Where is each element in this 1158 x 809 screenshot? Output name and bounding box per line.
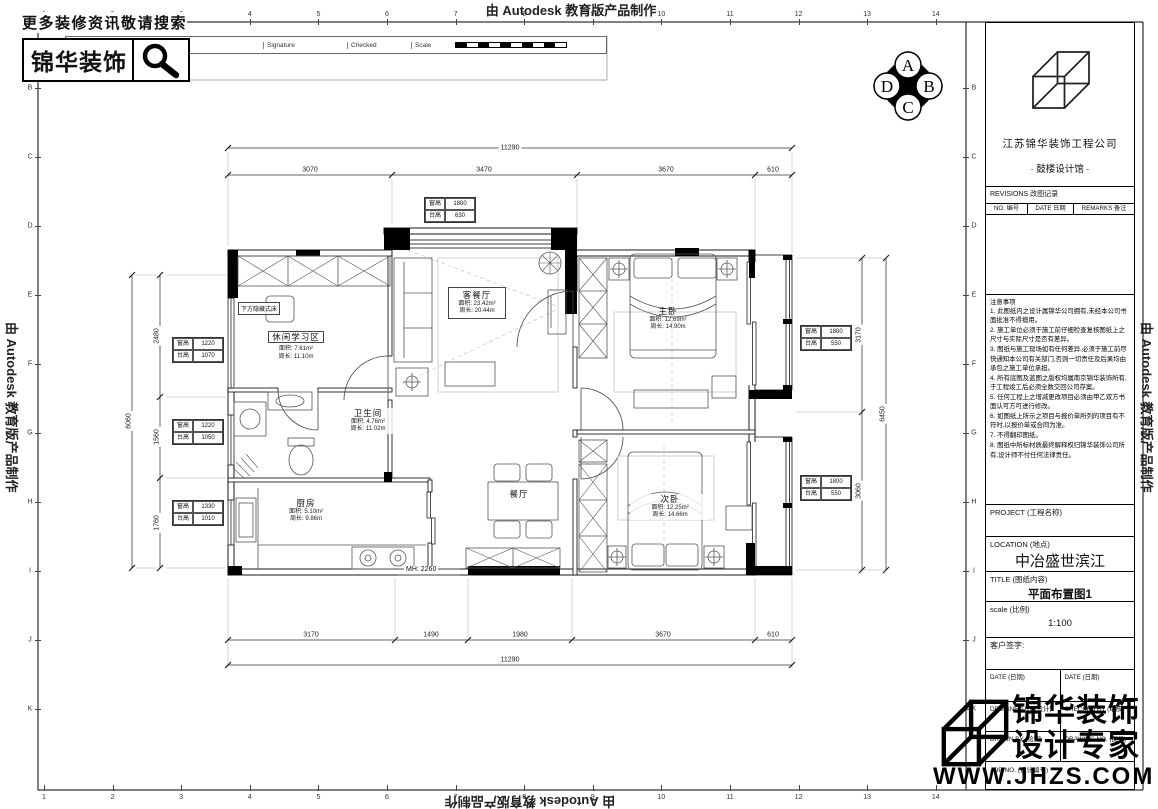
ruler-tick [35, 433, 41, 434]
dimension-ticks [129, 145, 889, 668]
location-value: 中冶盛世滨江 [986, 550, 1134, 571]
win-value: 630 [445, 210, 475, 222]
door-swings [278, 291, 623, 479]
note-item: 1. 此图纸内之设计属锦华公司拥有,未经本公司书面批准不得擅用。 [990, 307, 1130, 325]
grid-number-bottom: 10 [657, 794, 665, 801]
win-label: 台高 [801, 338, 821, 350]
watermark-slogan: 设计专家 [1012, 730, 1140, 761]
magnifier-icon [134, 40, 188, 80]
grid-number-bottom: 11 [726, 794, 733, 801]
grid-letter-right: F [972, 361, 976, 368]
watermark-cube-icon [936, 692, 1014, 774]
grid-letter-left: E [28, 292, 33, 299]
elevation-d: D [881, 77, 893, 96]
dim-top-seg: 610 [765, 167, 781, 174]
win-value: 550 [821, 488, 851, 500]
location-row: LOCATION (地点) 中冶盛世滨江 [986, 536, 1134, 571]
room-perimeter: 周长: 14.90m [628, 324, 708, 332]
grid-number-bottom: 8 [522, 794, 526, 801]
win-value: 1220 [193, 338, 223, 350]
ruler-tick [35, 88, 41, 89]
room-perimeter: 周长: 20.44m [450, 308, 504, 316]
win-label: 窗高 [801, 326, 821, 338]
grid-number-top: 9 [591, 11, 595, 18]
win-value: 1800 [821, 476, 851, 488]
ruler-tick [44, 785, 45, 791]
project-row: PROJECT (工程名称) [986, 504, 1134, 536]
grid-number-bottom: 1 [42, 794, 46, 801]
studio-name: · 鼓楼设计馆 · [986, 161, 1134, 175]
dim-top-total: 11290 [499, 145, 522, 152]
dim-left-seg: 2480 [154, 326, 161, 346]
grid-number-top: 8 [522, 11, 526, 18]
room-name: 客餐厅 [450, 290, 504, 301]
dim-right-seg: 3060 [856, 481, 863, 501]
win-value: 1070 [193, 350, 223, 362]
win-value: 1800 [821, 326, 851, 338]
ruler-tick [799, 19, 800, 25]
notes-section: 注意事项 1. 此图纸内之设计属锦华公司拥有,未经本公司书面批准不得擅用。 2.… [986, 294, 1134, 504]
window-table-top: 窗高1800 台高630 [424, 197, 476, 223]
elevation-b: B [923, 77, 934, 96]
grid-letter-right: I [973, 568, 975, 575]
room-label-kitchen: 厨房 面积: 5.10m² 周长: 9.86m [266, 498, 346, 524]
brand-name: 锦华装饰 [31, 43, 127, 77]
ruler-tick [35, 364, 41, 365]
ruler-tick [524, 785, 525, 791]
dim-bottom-seg: 3670 [653, 632, 673, 639]
win-label: 窗高 [173, 338, 193, 350]
win-value: 1050 [193, 432, 223, 444]
grid-letter-left: B [28, 85, 33, 92]
ruler-tick [35, 640, 41, 641]
grid-number-bottom: 9 [591, 794, 595, 801]
grid-number-top: 14 [932, 11, 940, 18]
ruler-tick [936, 19, 937, 25]
elevation-a: A [902, 56, 915, 75]
strip-scale-bar [455, 42, 567, 48]
window-table-left-2: 窗高1220 台高1050 [172, 419, 224, 445]
note-item: 7. 不得翻印图纸。 [990, 431, 1130, 440]
title-block: 江苏锦华装饰工程公司 · 鼓楼设计馆 · REVISIONS 改图记录 NO. … [985, 22, 1135, 790]
win-label: 台高 [425, 210, 445, 222]
dim-bottom-seg: 1980 [510, 632, 530, 639]
ruler-tick [963, 571, 969, 572]
revisions-table: NO. 编号 DATE 日期 REMARKS 备注 [986, 203, 1134, 295]
dim-bottom-total: 11290 [499, 657, 522, 664]
scale-label: scale (比例) [986, 602, 1134, 615]
room-name: 餐厅 [498, 489, 540, 500]
ruler-tick [35, 502, 41, 503]
dim-top-seg: 3670 [656, 167, 676, 174]
ruler-tick [661, 785, 662, 791]
room-label-living: 客餐厅 面积: 23.42m² 周长: 20.44m [448, 287, 506, 319]
win-label: 窗高 [425, 198, 445, 210]
window-table-right-2: 窗高1800 台高550 [800, 475, 852, 501]
room-name: 次卧 [630, 494, 710, 505]
room-perimeter: 周长: 11.10m [246, 354, 346, 362]
ruler-tick [799, 785, 800, 791]
ruler-tick [963, 502, 969, 503]
grid-number-bottom: 5 [316, 794, 320, 801]
company-logo-cube [1026, 37, 1096, 123]
win-label: 窗高 [173, 420, 193, 432]
win-label: 台高 [173, 350, 193, 362]
grid-letter-right: C [971, 154, 976, 161]
grid-number-bottom: 4 [248, 794, 252, 801]
ruler-tick [250, 19, 251, 25]
ruler-tick [661, 19, 662, 25]
grid-letter-left: K [28, 706, 33, 713]
grid-letter-right: G [971, 430, 976, 437]
ruler-tick [963, 157, 969, 158]
client-sign-label: 客户签字: [986, 638, 1134, 651]
dim-right-seg: 3170 [856, 325, 863, 345]
room-perimeter: 周长: 14.66m [630, 512, 710, 520]
grid-letter-left: J [28, 637, 32, 644]
elevation-marker: A B C D [870, 48, 946, 124]
grid-letter-left: H [27, 499, 32, 506]
room-label-bath: 卫生间 面积: 4.76m² 周长: 11.02m [328, 408, 408, 434]
notes-title: 注意事项 [990, 298, 1130, 307]
dim-top-seg: 3070 [300, 167, 320, 174]
ruler-tick [963, 364, 969, 365]
note-item: 3. 图纸与施工现场如有任何差异,必须于施工前尽快通知本公司有关部门,否则一切责… [990, 345, 1130, 372]
room-label-master: 主卧 面积: 12.69m² 周长: 14.90m [628, 306, 708, 332]
ruler-tick [730, 19, 731, 25]
grid-number-bottom: 7 [454, 794, 458, 801]
ruler-tick [181, 785, 182, 791]
ruler-tick [593, 785, 594, 791]
ruler-tick [456, 785, 457, 791]
grid-letter-right: D [971, 223, 976, 230]
room-label-study: 休闲学习区 面积: 7.61m² 周长: 11.10m [246, 326, 346, 361]
grid-letter-right: E [972, 292, 977, 299]
dim-bottom-seg: 1490 [421, 632, 441, 639]
win-value: 1010 [193, 513, 223, 525]
hidden-bed-note: 下方隐藏式床 [238, 302, 280, 315]
revisions-header: REVISIONS 改图记录 [986, 186, 1134, 203]
rev-col-date: DATE 日期 [1028, 204, 1074, 215]
note-item: 8. 图纸中所标材质最终解释权归锦华装饰公司所有,设计师不付任何法律责任。 [990, 441, 1130, 459]
dim-right-total: 6450 [880, 404, 887, 424]
ruler-tick [867, 19, 868, 25]
room-name: 主卧 [628, 306, 708, 317]
room-area: 面积: 12.25m² [630, 505, 710, 513]
scale-value: 1:100 [986, 618, 1134, 629]
dim-top-seg: 3470 [474, 167, 494, 174]
ruler-tick [35, 709, 41, 710]
ruler-tick [456, 19, 457, 25]
door-height-note: MH: 2260 [404, 566, 438, 573]
watermark-site: WWW.JHZS.COM [933, 765, 1154, 789]
title-row: TITLE (图纸内容) 平面布置图1 [986, 571, 1134, 601]
grid-number-bottom: 2 [111, 794, 115, 801]
ruler-tick [963, 295, 969, 296]
room-label-dining: 餐厅 [498, 489, 540, 500]
dim-bottom-seg: 3170 [301, 632, 321, 639]
grid-number-bottom: 14 [932, 794, 940, 801]
note-item: 2. 施工单位必须于施工前仔细检查复核图纸上之尺寸与实际尺寸是否有差异。 [990, 326, 1130, 344]
grid-letter-left: G [27, 430, 32, 437]
autodesk-banner-bottom: 由 Autodesk 教育版产品制作 [445, 793, 615, 809]
win-label: 窗高 [801, 476, 821, 488]
grid-number-top: 5 [316, 11, 320, 18]
autodesk-banner-left: 由 Autodesk 教育版产品制作 [3, 322, 22, 492]
strip-checked: Checked [348, 42, 412, 49]
grid-number-top: 6 [385, 11, 389, 18]
watermark-brand: 锦华装饰 [1012, 695, 1140, 726]
grid-number-bottom: 6 [385, 794, 389, 801]
ruler-tick [524, 19, 525, 25]
win-value: 1220 [193, 420, 223, 432]
ruler-tick [963, 88, 969, 89]
sheet-frame [38, 22, 1143, 790]
grid-number-top: 13 [863, 11, 871, 18]
grid-number-top: 12 [795, 11, 803, 18]
grid-number-top: 11 [726, 11, 733, 18]
scale-row: scale (比例) 1:100 [986, 601, 1134, 637]
window-table-left-3: 窗高1330 台高1010 [172, 500, 224, 526]
grid-letter-left: I [29, 568, 31, 575]
search-tagline: 更多装修资讯敬请搜索 [22, 12, 187, 33]
magnifier-box [132, 38, 190, 82]
location-label: LOCATION (地点) [986, 537, 1134, 550]
title-value: 平面布置图1 [986, 586, 1134, 602]
win-value: 1800 [445, 198, 475, 210]
room-area: 面积: 12.69m² [628, 317, 708, 325]
win-label: 台高 [173, 513, 193, 525]
ruler-tick [730, 785, 731, 791]
grid-number-top: 10 [657, 11, 665, 18]
ruler-tick [35, 157, 41, 158]
ruler-tick [113, 785, 114, 791]
grid-number-top: 7 [454, 11, 458, 18]
grid-letter-left: C [27, 154, 32, 161]
rev-col-remarks: REMARKS 备注 [1074, 204, 1134, 215]
room-area: 面积: 5.10m² [266, 509, 346, 517]
dim-left-seg: 1760 [154, 513, 161, 533]
note-item: 4. 所有底图及蓝图之版权均属南京锦华装饰所有,于工程竣工后必须全数交回公司存案… [990, 374, 1130, 392]
win-label: 台高 [173, 432, 193, 444]
room-label-second: 次卧 面积: 12.25m² 周长: 14.66m [630, 494, 710, 520]
room-area: 面积: 23.42m² [450, 301, 504, 309]
brand-box: 锦华装饰 [22, 38, 136, 82]
ruler-tick [35, 571, 41, 572]
ruler-tick [35, 226, 41, 227]
ruler-tick [593, 19, 594, 25]
ruler-tick [963, 226, 969, 227]
grid-letter-right: B [972, 85, 977, 92]
ruler-tick [35, 295, 41, 296]
balcony-windows [755, 255, 792, 575]
ruler-tick [250, 785, 251, 791]
win-value: 550 [821, 338, 851, 350]
autodesk-banner-top: 由 Autodesk 教育版产品制作 [486, 0, 656, 19]
grid-letter-left: F [28, 361, 32, 368]
grid-number-bottom: 3 [179, 794, 183, 801]
room-area: 面积: 7.61m² [246, 346, 346, 354]
drawing-sheet: 由 Autodesk 教育版产品制作 由 Autodesk 教育版产品制作 由 … [0, 0, 1158, 809]
strip-signature: Signature [264, 42, 348, 49]
ruler-tick [387, 19, 388, 25]
room-name: 休闲学习区 [268, 331, 324, 343]
dim-bottom-seg: 610 [765, 632, 781, 639]
dim-left-seg: 1560 [154, 427, 161, 447]
window-table-right-1: 窗高1800 台高550 [800, 325, 852, 351]
grid-letter-left: D [27, 223, 32, 230]
grid-letter-right: H [971, 499, 976, 506]
elevation-c: C [902, 98, 913, 117]
ruler-tick [963, 640, 969, 641]
grid-number-top: 4 [248, 11, 252, 18]
note-item: 6. 如图纸上所示之项目与报价单所列的项目有不符时,以报价单或合同为准。 [990, 412, 1130, 430]
window-table-left-1: 窗高1220 台高1070 [172, 337, 224, 363]
dim-left-total: 6060 [126, 411, 133, 431]
win-label: 窗高 [173, 501, 193, 513]
autodesk-banner-right: 由 Autodesk 教育版产品制作 [1138, 322, 1157, 492]
ruler-tick [318, 19, 319, 25]
room-perimeter: 周长: 9.86m [266, 516, 346, 524]
win-label: 台高 [801, 488, 821, 500]
grid-number-bottom: 12 [795, 794, 803, 801]
client-sign-row: 客户签字: [986, 637, 1134, 669]
strip-scale: Scale [412, 42, 455, 49]
grid-letter-right: J [972, 637, 976, 644]
room-name: 卫生间 [328, 408, 408, 419]
grid-number-bottom: 13 [863, 794, 871, 801]
ruler-tick [318, 785, 319, 791]
room-name: 厨房 [266, 498, 346, 509]
rev-col-no: NO. 编号 [986, 204, 1028, 215]
project-label: PROJECT (工程名称) [986, 505, 1134, 518]
ruler-tick [867, 785, 868, 791]
room-area: 面积: 4.76m² [328, 419, 408, 427]
ruler-tick [963, 433, 969, 434]
ruler-tick [387, 785, 388, 791]
title-label: TITLE (图纸内容) [986, 572, 1134, 585]
dimension-lines [132, 148, 886, 665]
room-perimeter: 周长: 11.02m [328, 426, 408, 434]
note-item: 5. 任何工程上之增减更改项目必须由甲乙双方书面认可方可进行修改。 [990, 393, 1130, 411]
win-value: 1330 [193, 501, 223, 513]
revisions-title: REVISIONS 改图记录 [986, 187, 1134, 199]
company-name: 江苏锦华装饰工程公司 [986, 136, 1134, 151]
